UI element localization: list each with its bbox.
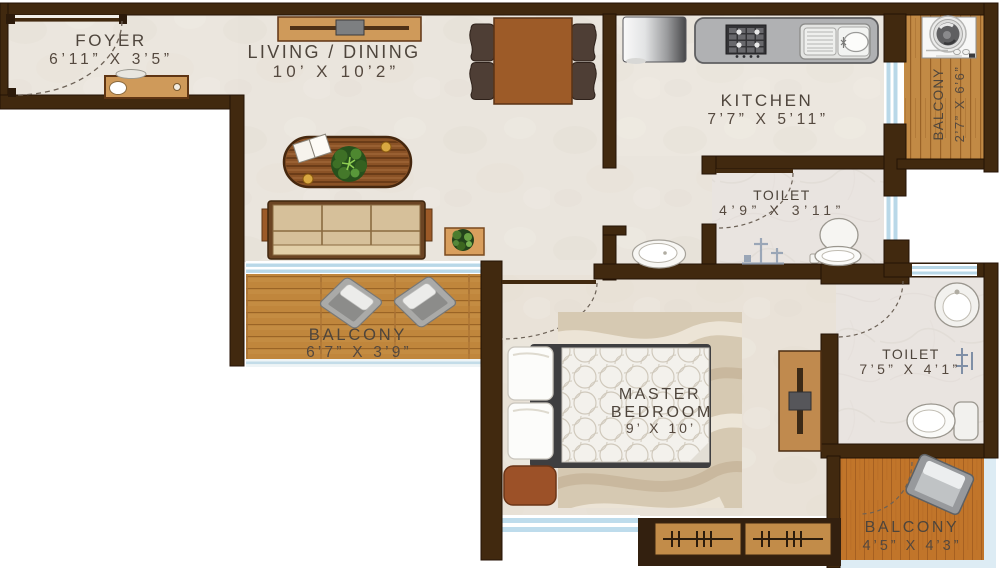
svg-text:TOILET: TOILET	[753, 187, 811, 203]
svg-text:10’ X 10’2”: 10’ X 10’2”	[273, 62, 400, 81]
svg-text:BEDROOM: BEDROOM	[611, 404, 713, 421]
svg-text:LIVING / DINING: LIVING / DINING	[247, 42, 420, 62]
svg-text:MASTER: MASTER	[619, 386, 701, 403]
svg-text:2’7” X 6’6”: 2’7” X 6’6”	[952, 66, 967, 143]
svg-text:FOYER: FOYER	[75, 31, 147, 50]
svg-text:KITCHEN: KITCHEN	[721, 91, 814, 110]
svg-text:BALCONY: BALCONY	[309, 326, 407, 344]
svg-text:9’ X 10’: 9’ X 10’	[626, 420, 696, 436]
svg-text:TOILET: TOILET	[882, 346, 940, 362]
svg-text:BALCONY: BALCONY	[865, 519, 960, 536]
svg-text:7’5” X 4’1”: 7’5” X 4’1”	[859, 361, 960, 377]
svg-text:4’9” X 3’11”: 4’9” X 3’11”	[719, 202, 845, 218]
svg-text:4’5” X 4’3”: 4’5” X 4’3”	[862, 538, 961, 554]
svg-text:BALCONY: BALCONY	[931, 68, 946, 141]
svg-text:6’11” X 3’5”: 6’11” X 3’5”	[49, 51, 173, 68]
svg-text:6’7” X 3’9”: 6’7” X 3’9”	[306, 344, 412, 361]
svg-text:7’7” X 5’11”: 7’7” X 5’11”	[707, 111, 828, 128]
